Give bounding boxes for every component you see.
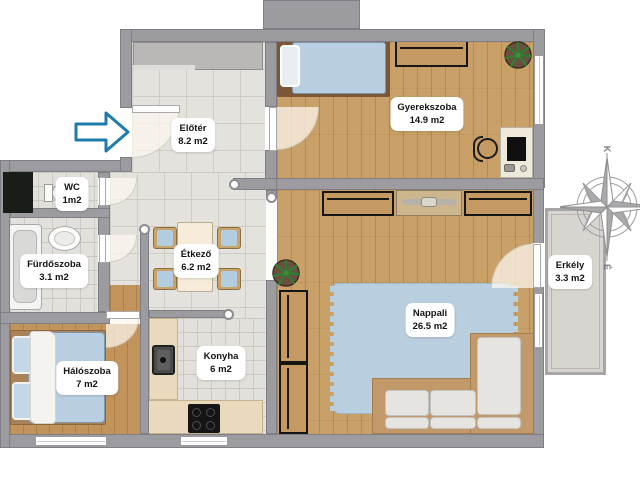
bathroom-sink-bowl [54,231,75,246]
wall [149,310,228,318]
room-area: 6.2 m2 [181,261,212,274]
bedroom-door-leaf [106,311,140,319]
compass-top-letter: K [602,146,612,153]
room-label-haloszoba: Hálószoba 7 m2 [56,361,118,395]
plant-icon [504,41,532,69]
room-area: 6 m2 [204,363,239,376]
wall-end-cap [139,224,150,235]
dining-chair [217,227,241,249]
entry-door-leaf [132,105,180,113]
tv-center [421,197,437,207]
sofa-front-cushion [385,417,429,429]
rug-fringe-left [330,286,335,411]
dining-chair [217,268,241,290]
wall-end-cap [223,309,234,320]
desk-mouse [520,165,527,172]
livingroom-window [534,293,543,348]
bed-blanket [30,331,56,424]
tall-cabinet-lower [279,363,308,434]
chair-seat [221,230,237,246]
bathroom-door-leaf [99,234,106,263]
entrance-arrow-icon [70,106,134,158]
chair-seat [157,230,173,246]
chair-seat [157,271,173,287]
room-area: 14.9 m2 [397,114,456,127]
room-name: Előtér [178,122,208,135]
burner [192,421,201,430]
living-sideboard-left [322,191,394,216]
room-label-gyerekszoba: Gyerekszoba 14.9 m2 [390,97,463,131]
room-label-erkely: Erkély 3.3 m2 [548,255,592,289]
dining-chair [153,227,177,249]
chair-seat [221,271,237,287]
sofa-seat-cushion [385,390,429,416]
desk-chair-seat [477,138,498,159]
room-label-etkezo: Étkező 6.2 m2 [174,244,219,278]
room-name: Étkező [181,248,212,261]
childroom-window [534,55,544,125]
desk-printer [504,164,515,172]
wall [266,280,277,434]
shaft-block [3,172,33,213]
child-bed-duvet [292,42,386,94]
wall [0,312,110,324]
plant-icon [272,259,300,287]
wall [0,160,132,172]
wall [120,29,545,42]
room-label-konyha: Konyha 6 m2 [197,346,246,380]
wall [140,228,149,434]
room-area: 7 m2 [63,378,111,391]
wall-end-cap [266,192,277,203]
room-name: Gyerekszoba [397,101,456,114]
room-name: Erkély [555,259,585,272]
wall [265,42,277,107]
child-wardrobe [395,40,468,67]
wall [120,157,132,172]
wall [120,29,132,108]
burner [206,408,215,417]
floor-corridor-wood [110,285,141,312]
sofa-front-cushion [430,417,476,429]
tall-cabinet-upper [279,290,308,363]
living-sideboard-right [464,191,532,216]
room-area: 3.1 m2 [27,271,81,284]
floor-plan: K É Előtér 8.2 m2 WC 1m2 Fürdőszoba 3.1 … [0,0,640,480]
room-name: WC [62,181,81,194]
sink-faucet [160,357,166,363]
plant [272,259,300,287]
balcony-door-leaf [533,244,541,288]
room-label-eloter: Előtér 8.2 m2 [171,118,215,152]
burner [206,421,215,430]
plant [504,41,532,69]
burner [192,408,201,417]
compass-bottom-letter: É [602,264,612,270]
room-area: 3.3 m2 [555,272,585,285]
sofa-front-cushion [477,417,521,429]
kitchen-window [180,436,228,446]
room-label-nappali: Nappali 26.5 m2 [406,303,455,337]
childroom-door-leaf [269,107,277,151]
room-label-wc: WC 1m2 [55,177,88,211]
sofa-chaise-cushion [477,337,521,415]
wc-door-leaf [99,177,106,206]
wall [263,0,360,29]
room-area: 8.2 m2 [178,135,208,148]
bedroom-window [35,436,107,446]
hall-closet-door [133,65,195,70]
sofa-seat-cushion [430,390,476,416]
room-name: Konyha [204,350,239,363]
room-name: Fürdőszoba [27,258,81,271]
wall [265,178,544,190]
room-area: 1m2 [62,194,81,207]
room-area: 26.5 m2 [413,320,448,333]
room-name: Hálószoba [63,365,111,378]
desk-monitor [507,137,526,161]
child-bed-pillow [280,45,300,87]
room-name: Nappali [413,307,448,320]
wall-end-cap [229,179,240,190]
room-label-furdoszoba: Fürdőszoba 3.1 m2 [20,254,88,288]
